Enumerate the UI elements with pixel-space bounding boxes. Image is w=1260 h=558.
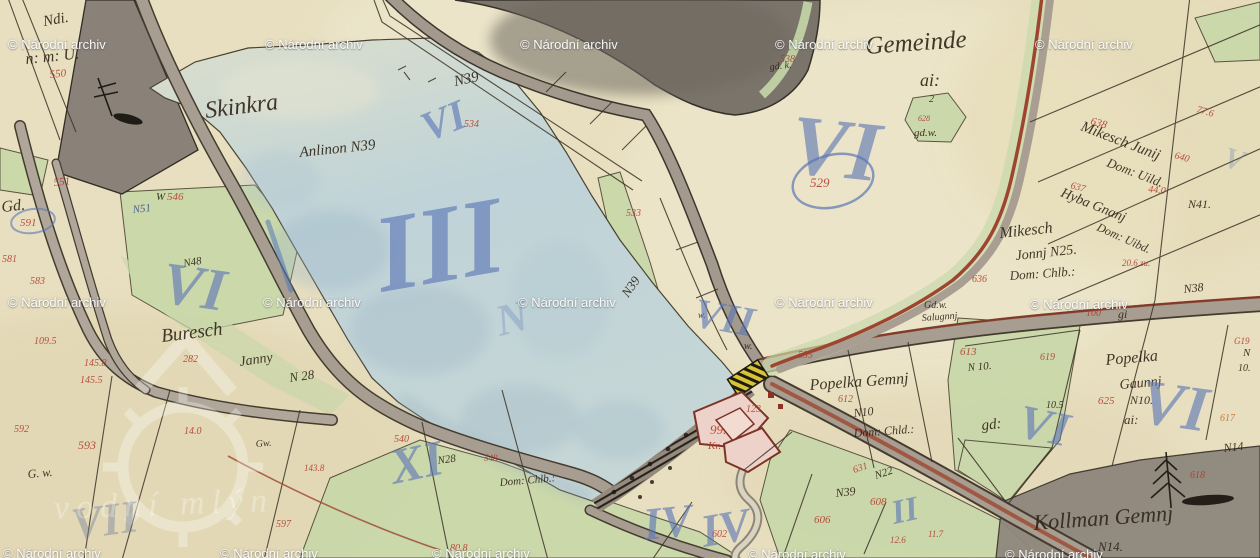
logo-watermark-text: vodní mlýn — [53, 482, 274, 528]
archive-watermark: © Národní archiv — [1005, 547, 1103, 558]
map-label: Gd. — [1, 197, 26, 216]
map-label: VI — [158, 250, 233, 325]
map-label: 592 — [14, 424, 29, 435]
map-label: N38 — [1182, 280, 1204, 296]
map-label: 10. — [1238, 363, 1251, 374]
map-label: N — [1242, 347, 1251, 359]
archive-watermark: © Národní archiv — [1035, 37, 1133, 53]
map-label: 618 — [1190, 470, 1205, 481]
map-label: N41. — [1187, 197, 1211, 211]
map-label: 143.8 — [304, 463, 325, 473]
map-label: 636 — [972, 274, 987, 285]
archive-watermark: © Národní archiv — [518, 295, 616, 311]
archive-watermark: © Národní archiv — [520, 37, 618, 53]
archive-watermark: © Národní archiv — [748, 547, 846, 558]
map-label: 538 — [780, 54, 795, 65]
map-label: 591 — [20, 217, 37, 229]
map-label: Gw. — [255, 438, 272, 450]
map-label: N10 — [852, 404, 874, 420]
archive-watermark: © Národní archiv — [220, 546, 318, 558]
map-label: 14.0 — [184, 426, 202, 437]
map-label: N14 — [1222, 439, 1244, 455]
map-label: VI — [786, 97, 888, 200]
archive-watermark: © Národní archiv — [8, 295, 106, 311]
historical-cadastral-map[interactable]: Ndi.n: m: U.SkinkraAnlinon N39N39Gemeind… — [0, 0, 1260, 558]
map-label: 99. — [710, 422, 726, 437]
map-svg: Ndi.n: m: U.SkinkraAnlinon N39N39Gemeind… — [0, 0, 1260, 558]
map-label: 583 — [30, 276, 45, 287]
map-label: Kr. — [707, 440, 721, 452]
map-label: 145.8 — [84, 358, 107, 369]
map-label: 613 — [960, 346, 977, 358]
archive-watermark: © Národní archiv — [775, 295, 873, 311]
map-label: 12.6 — [890, 535, 906, 545]
map-label: ai: — [920, 70, 940, 90]
map-label: 533 — [626, 208, 641, 219]
map-label: 548 — [484, 453, 498, 463]
map-label: 44.0 — [1148, 184, 1167, 197]
map-label: 619 — [1040, 352, 1055, 363]
map-label: 581 — [2, 254, 17, 265]
map-label: ai: — [1124, 412, 1138, 427]
archive-watermark: © Národní archiv — [8, 37, 106, 53]
map-label: III — [363, 173, 516, 316]
map-label: 2 — [929, 94, 934, 105]
map-label: 625 — [1098, 395, 1115, 407]
map-label: 593 — [78, 438, 96, 452]
archive-watermark: © Národní archiv — [263, 295, 361, 311]
map-label: 123 — [746, 404, 761, 415]
map-label: 20.6 zu. — [1122, 258, 1150, 268]
map-label: N 10. — [966, 360, 992, 374]
map-label: IV — [640, 494, 698, 550]
map-label: 535 — [798, 350, 813, 361]
map-label: Gd.w. — [924, 300, 947, 311]
map-label: 546 — [167, 191, 184, 203]
map-label: N51 — [131, 202, 151, 216]
map-label: W — [156, 191, 166, 203]
map-label: G19 — [1234, 336, 1250, 346]
archive-watermark: © Národní archiv — [432, 546, 530, 558]
map-label: VI — [1136, 366, 1215, 446]
map-label: 608 — [870, 496, 887, 508]
map-label: gd.w. — [914, 127, 937, 139]
archive-watermark: © Národní archiv — [1030, 297, 1128, 313]
map-label: 282 — [183, 354, 198, 365]
map-label: gd: — [981, 416, 1003, 434]
map-label: 628 — [918, 114, 930, 123]
map-label: 550 — [49, 67, 67, 81]
archive-watermark: © Národní archiv — [265, 37, 363, 53]
archive-watermark: © Národní archiv — [775, 37, 873, 53]
map-label: 109.5 — [34, 336, 57, 347]
map-label: 145.5 — [80, 375, 103, 386]
map-label: G. w. — [27, 465, 53, 481]
map-label: 606 — [814, 514, 831, 526]
map-label: N39 — [834, 484, 856, 500]
map-label: 551 — [53, 175, 71, 189]
archive-watermark: © Národní archiv — [3, 546, 101, 558]
map-label: 617 — [1220, 413, 1236, 424]
map-label: 612 — [838, 394, 853, 405]
map-label: 11.7 — [928, 529, 944, 539]
map-label: 597 — [276, 519, 292, 530]
